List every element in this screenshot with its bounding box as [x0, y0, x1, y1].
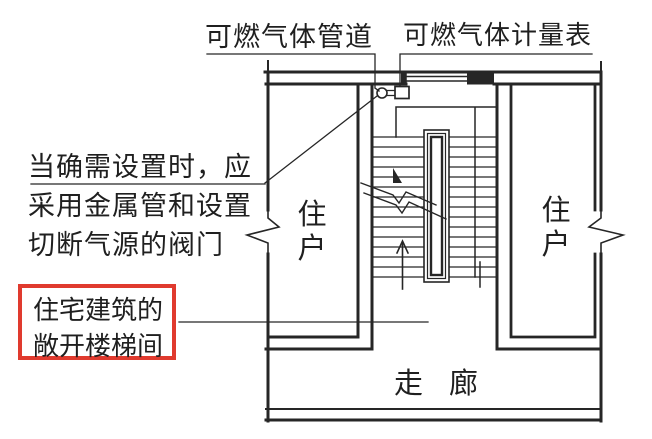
floor-plan-diagram: 可燃气体管道 可燃气体计量表 当确需设置时，应 采用金属管和设置 切断气源的阀门… [0, 0, 652, 439]
wall-break-right-icon [589, 210, 623, 254]
highlight-line2: 敞开楼梯间 [33, 329, 172, 365]
stair-up-arrow-icon [397, 241, 408, 289]
unit-label-left: 住户 [296, 198, 328, 266]
gas-meter-icon [387, 87, 409, 99]
valve-note-line3: 切断气源的阀门 [28, 226, 252, 265]
gas-pipe-label: 可燃气体管道 [205, 15, 373, 54]
stairwell [361, 84, 497, 349]
stair-direction-flag-icon [393, 168, 402, 183]
corridor-label: 走廊 [394, 360, 504, 402]
highlight-box: 住宅建筑的 敞开楼梯间 [18, 284, 176, 360]
unit-label-right: 住户 [540, 194, 572, 262]
corridor-walls [266, 409, 601, 420]
stair-rail [424, 130, 449, 282]
valve-note: 当确需设置时，应 采用金属管和设置 切断气源的阀门 [28, 148, 252, 265]
highlight-line1: 住宅建筑的 [33, 293, 172, 329]
gas-meter-label: 可燃气体计量表 [403, 15, 592, 52]
valve-note-line2: 采用金属管和设置 [28, 187, 252, 226]
valve-note-line1: 当确需设置时，应 [28, 148, 252, 187]
